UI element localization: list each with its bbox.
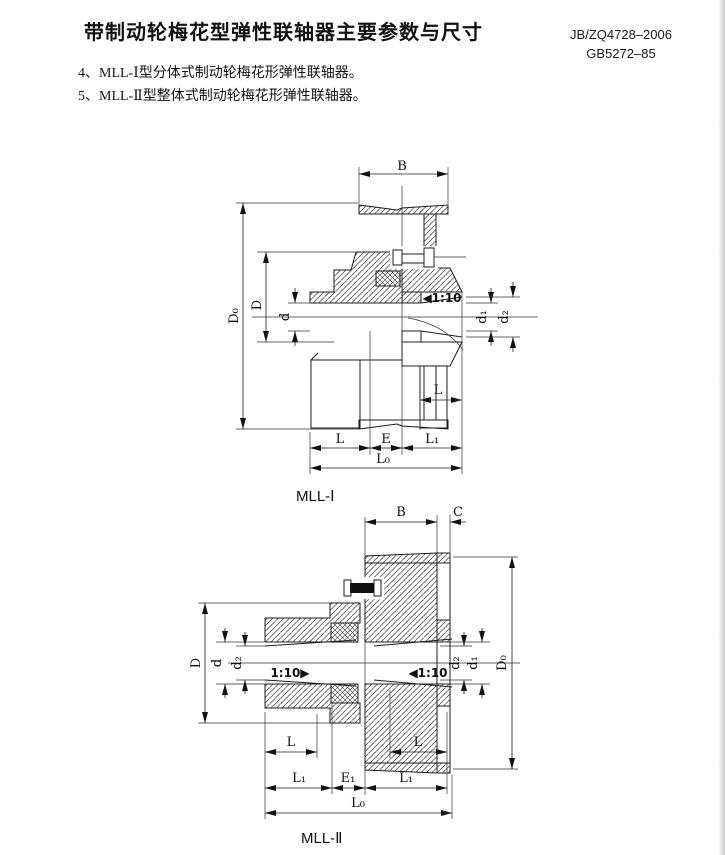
mll1-dim-B-label: B xyxy=(397,159,407,174)
mll2-dim-d2-right-label: d₂ xyxy=(448,656,463,670)
mll2-dim-E1-label: E₁ xyxy=(341,771,356,786)
mll1-dim-L1-label: L₁ xyxy=(425,432,439,447)
mll1-dim-L0-label: L₀ xyxy=(376,452,390,467)
mll2-bolt xyxy=(340,577,384,599)
mll1-taper-label: ◀1:10 xyxy=(422,291,461,305)
mll2-dim-C-label: C xyxy=(453,505,463,520)
mll1-bolt xyxy=(390,246,466,269)
mll2-drawing: B C D d d₂ 1:10▶ ◀1:10 d₂ xyxy=(189,505,520,847)
mll2-dim-D-label: D xyxy=(189,658,204,668)
mll2-right-half-section-lower xyxy=(365,684,450,763)
mll1-dim-E-label: E xyxy=(381,432,391,447)
mll1-taper-bore-line-lower xyxy=(421,331,462,337)
mll2-taper-right-label: ◀1:10 xyxy=(408,666,447,680)
mll2-dim-d-label: d xyxy=(210,659,225,667)
mll1-right-hub-lower xyxy=(402,331,421,342)
mll1-dim-d-label: d xyxy=(278,313,293,321)
mll1-brake-wheel-rim xyxy=(359,205,448,214)
mll1-bolt-bg xyxy=(390,246,438,269)
mll2-taper-left-label: 1:10▶ xyxy=(270,666,310,680)
mll1-elastomer-spider xyxy=(376,271,400,286)
mll2-bolt-shank xyxy=(350,583,374,593)
mll2-elastomer-spider-lower xyxy=(331,684,358,703)
technical-drawings: B D₀ D d ◀1:10 d₁ d₂ L xyxy=(0,0,725,855)
mll1-right-flange-section xyxy=(402,268,462,292)
mll2-dim-D0-label: D₀ xyxy=(495,655,510,671)
mll1-dim-Lhub-label: L xyxy=(434,383,443,398)
mll1-drawing: B D₀ D d ◀1:10 d₁ d₂ L xyxy=(227,159,538,505)
mll1-dim-D-label: D xyxy=(250,300,265,310)
mll2-dim-d1-label: d₁ xyxy=(466,656,481,670)
mll1-right-hub-section xyxy=(402,292,421,303)
mll2-dim-L1-left-label: L₁ xyxy=(292,771,306,786)
mll2-dim-L1-right-label: L₁ xyxy=(399,771,413,786)
mll2-dim-L-right-label: L xyxy=(414,735,423,750)
mll2-dim-B-label: B xyxy=(396,505,406,520)
mll2-dim-L0-label: L₀ xyxy=(351,796,365,811)
mll1-dim-d1-label: d₁ xyxy=(475,310,490,324)
mll1-right-flange-lower xyxy=(402,342,462,366)
mll2-brake-wheel-rim xyxy=(365,553,450,563)
mll1-dim-d2-label: d₂ xyxy=(497,310,512,324)
mll1-web-profile-curve xyxy=(408,318,463,350)
mll1-dim-L-label: L xyxy=(336,432,345,447)
mll2-caption: MLL-Ⅱ xyxy=(301,830,343,847)
mll2-dim-d2-left-label: d₂ xyxy=(230,656,245,670)
mll1-dim-D0-label: D₀ xyxy=(227,308,242,324)
mll2-right-half-section xyxy=(365,563,450,642)
mll1-caption: MLL-Ⅰ xyxy=(296,488,335,505)
mll2-elastomer-spider-upper xyxy=(331,623,358,642)
mll2-dim-L-left-label: L xyxy=(287,735,296,750)
mll1-left-hub-lower xyxy=(311,353,360,428)
